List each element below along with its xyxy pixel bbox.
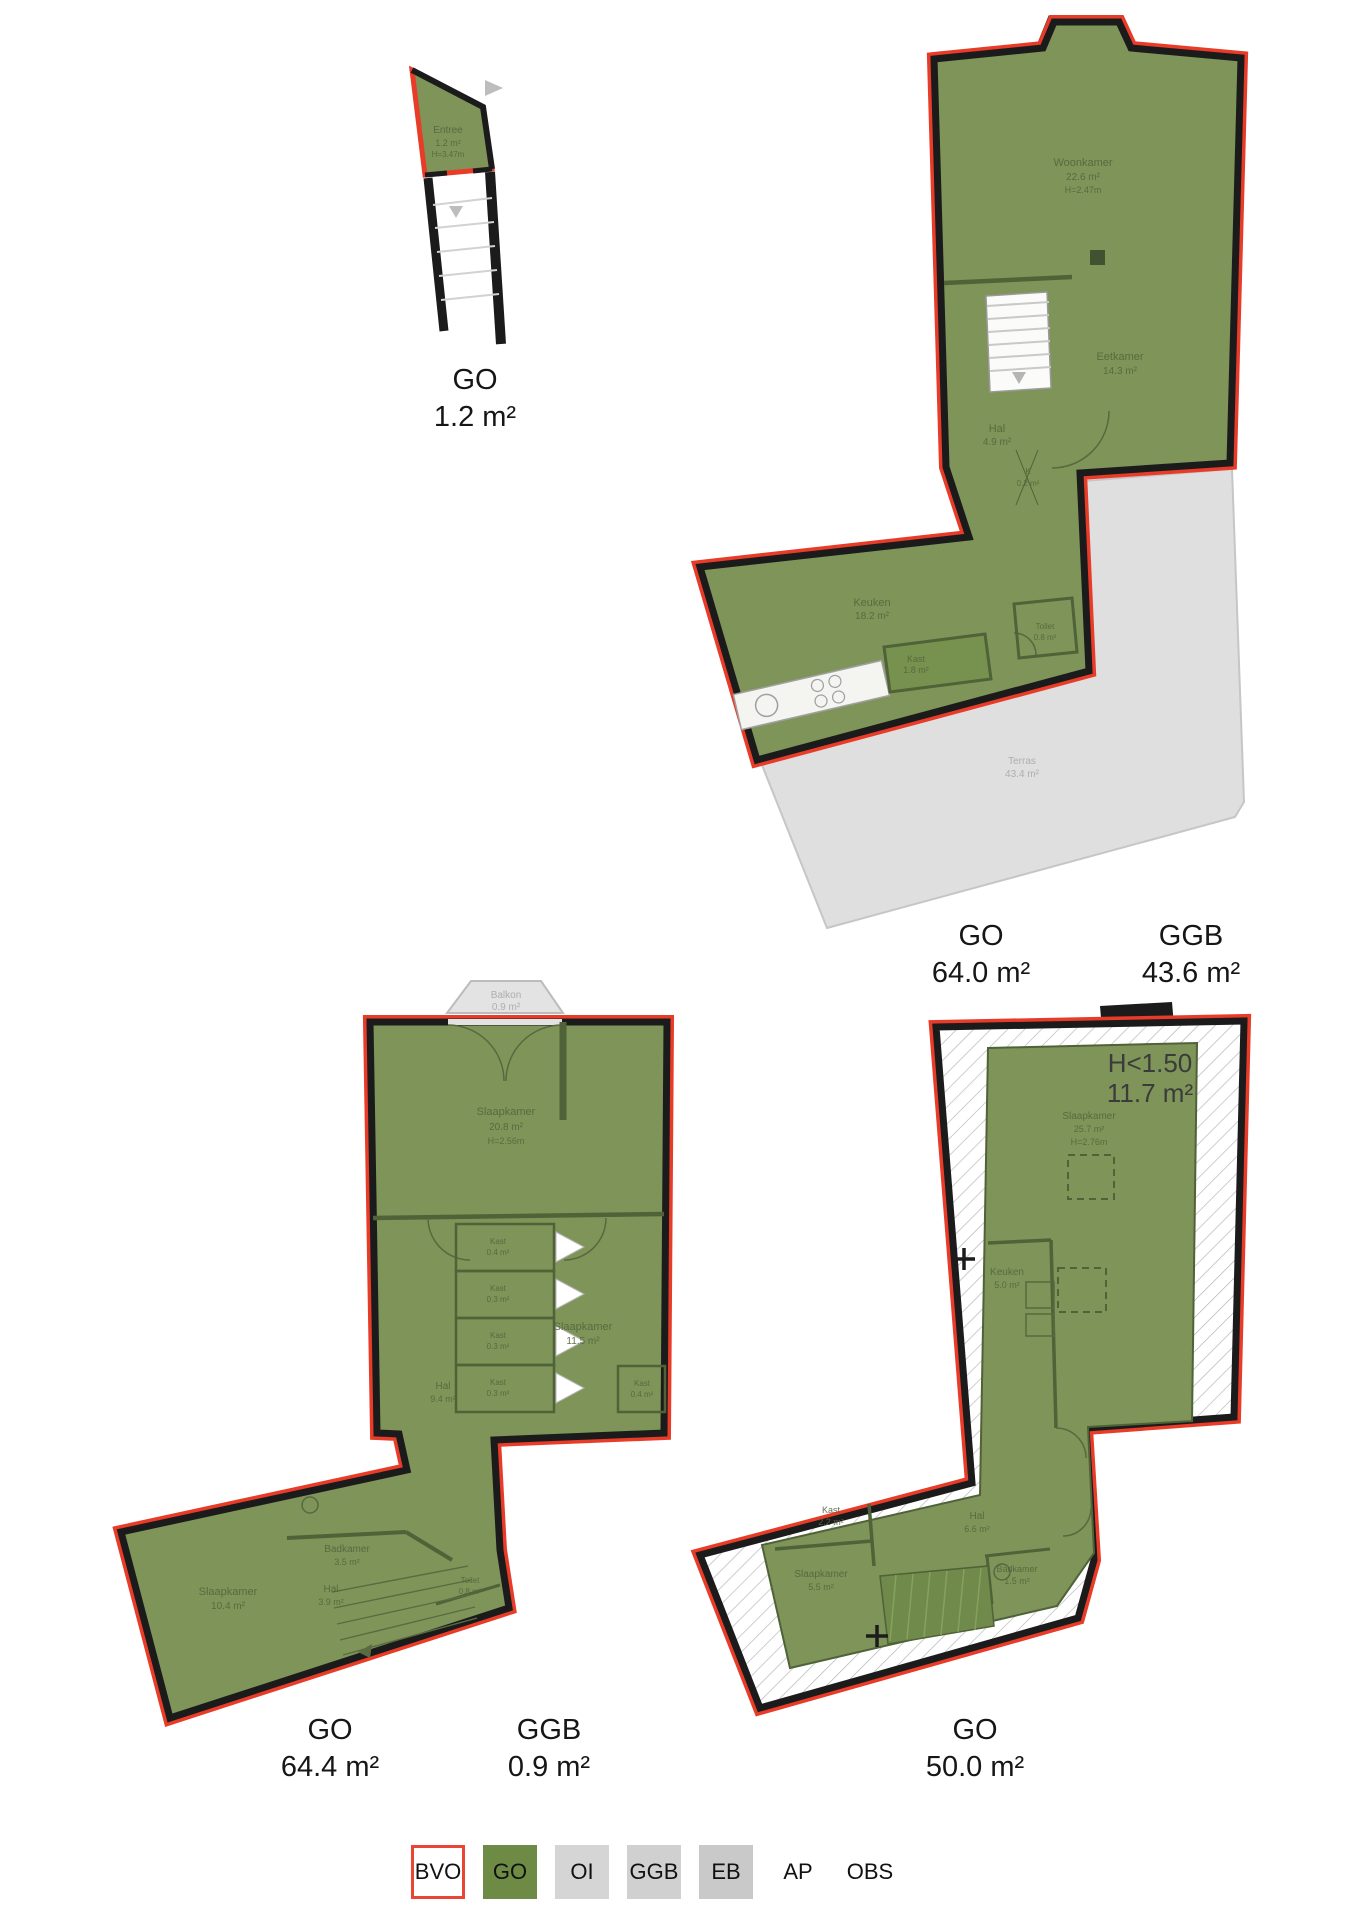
room-area-slaapkamer2: 5.5 m² [808,1582,834,1592]
room-label-badkamer: Badkamer [996,1564,1037,1574]
entry-arrow-icon [485,80,503,96]
low-height-annotation-line2: 11.7 m² [1107,1078,1194,1108]
legend-label-oi: OI [555,1845,609,1899]
room-label-k: K [1025,467,1031,476]
area-type: GGB [449,1712,649,1749]
room-label-balkon: Balkon [491,990,522,1001]
room-area-terras: 43.4 m² [1005,769,1040,780]
room-area-woonkamer: 22.6 m² [1066,172,1101,183]
legend-label-go: GO [483,1845,537,1899]
area-summary-ggb-floor1: GGB 43.6 m² [1091,918,1291,992]
area-value: 43.6 m² [1091,955,1291,992]
room-area-kast: 1.8 m² [903,665,929,675]
legend-label-eb: EB [699,1845,753,1899]
area-type: GO [881,918,1081,955]
room-label-keuken: Keuken [990,1267,1024,1278]
room-height-entree: H=3.47m [432,150,465,159]
room-label-badkamer: Badkamer [324,1544,370,1555]
room-area-keuken: 5.0 m² [994,1280,1020,1290]
floor2-balcony: Balkon 0.9 m² [447,981,563,1013]
legend-item-ggb: GGB [627,1845,681,1899]
room-height-slaapkamer1: H=2.76m [1071,1137,1108,1147]
room-height-slaapkamer1: H=2.56m [488,1136,525,1146]
room-area-badkamer: 3.5 m² [334,1557,360,1567]
legend-item-go: GO [483,1845,537,1899]
plan-entree: Entree 1.2 m² H=3.47m [412,70,503,344]
plan-floor2: Balkon 0.9 m² [121,981,667,1718]
room-area-kast: 2.2 m² [818,1517,844,1527]
chimney-block [1090,250,1105,265]
room-area-keuken: 18.2 m² [855,611,890,622]
room-area-eetkamer: 14.3 m² [1103,366,1138,377]
room-area-k: 0.2 m² [1017,479,1040,488]
low-height-annotation-line1: H<1.50 [1108,1048,1193,1078]
legend-label-obs: OBS [843,1845,897,1899]
room-label-hal: Hal [435,1381,450,1392]
room-label-kast3: Kast [490,1331,507,1340]
room-area-badkamer: 1.5 m² [1004,1576,1030,1586]
room-label-hal2: Hal [323,1584,338,1595]
legend-item-bvo: BVO [411,1845,465,1899]
legend-label-ggb: GGB [627,1845,681,1899]
legend: BVO GO OI GGB EB AP OBS [411,1845,897,1899]
entree-wall-segment [425,173,447,175]
room-label-kast1: Kast [490,1237,507,1246]
room-area-slaapkamer1: 25.7 m² [1074,1124,1105,1134]
area-value: 64.4 m² [230,1749,430,1786]
room-area-entree: 1.2 m² [435,138,461,148]
area-type: GO [375,362,575,399]
room-label-slaapkamer1: Slaapkamer [1062,1111,1116,1122]
room-area-toilet: 0.8 m² [1034,633,1057,642]
room-label-slaapkamer2: Slaapkamer [554,1321,613,1333]
room-area-kast4: 0.3 m² [487,1389,510,1398]
plan-floor3: H<1.50 11.7 m² Slaapkamer 25.7 m² H=2.76… [700,1002,1244,1708]
legend-item-oi: OI [555,1845,609,1899]
area-type: GO [875,1712,1075,1749]
area-summary-go-entree: GO 1.2 m² [375,362,575,436]
legend-item-eb: EB [699,1845,753,1899]
area-summary-go-floor3: GO 50.0 m² [875,1712,1075,1786]
room-area-hal2: 3.9 m² [318,1597,344,1607]
room-area-kast3: 0.3 m² [487,1342,510,1351]
room-label-toilet: Toilet [1036,622,1055,631]
room-label-entree: Entree [433,125,463,136]
area-value: 50.0 m² [875,1749,1075,1786]
area-value: 0.9 m² [449,1749,649,1786]
room-label-keuken: Keuken [853,597,890,609]
room-label-slaapkamer1: Slaapkamer [477,1106,536,1118]
area-value: 64.0 m² [881,955,1081,992]
room-area-hal: 6.6 m² [964,1524,990,1534]
room-label-kast2: Kast [490,1284,507,1293]
floor2-go-area [121,1022,667,1718]
room-label-eetkamer: Eetkamer [1096,351,1143,363]
room-label-toilet: Toilet [461,1576,480,1585]
room-area-kast5: 0.4 m² [631,1390,654,1399]
floor1-staircase [986,292,1051,392]
room-label-hal: Hal [989,423,1006,435]
room-area-slaapkamer3: 10.4 m² [211,1601,246,1612]
room-label-woonkamer: Woonkamer [1053,157,1112,169]
room-label-terras: Terras [1008,756,1036,767]
area-summary-ggb-floor2: GGB 0.9 m² [449,1712,649,1786]
room-area-toilet: 0.8 m² [459,1587,482,1596]
area-type: GGB [1091,918,1291,955]
room-area-kast1: 0.4 m² [487,1248,510,1257]
room-height-woonkamer: H=2.47m [1065,185,1102,195]
legend-label-ap: AP [771,1845,825,1899]
room-area-hal: 9.4 m² [430,1394,456,1404]
legend-item-obs: OBS [843,1845,897,1899]
room-area-kast2: 0.3 m² [487,1295,510,1304]
room-area-hal: 4.9 m² [983,437,1012,448]
room-label-kast4: Kast [490,1378,507,1387]
legend-item-ap: AP [771,1845,825,1899]
room-label-slaapkamer2: Slaapkamer [794,1569,848,1580]
room-label-hal: Hal [969,1511,984,1522]
area-summary-go-floor2: GO 64.4 m² [230,1712,430,1786]
plan-floor1: Terras 43.4 m² [700,19,1244,928]
area-summary-go-floor1: GO 64.0 m² [881,918,1081,992]
room-label-kast5: Kast [634,1379,651,1388]
room-area-slaapkamer2: 11.5 m² [566,1336,600,1347]
area-value: 1.2 m² [375,399,575,436]
room-label-kast: Kast [907,654,926,664]
room-area-balkon: 0.9 m² [492,1002,521,1013]
room-area-slaapkamer1: 20.8 m² [489,1122,524,1133]
entree-go-area [412,70,492,175]
stairs-down-arrow-icon [449,206,463,218]
entree-wall-segment [473,169,492,171]
area-type: GO [230,1712,430,1749]
legend-label-bvo: BVO [411,1845,465,1899]
floorplan-sheet: Entree 1.2 m² H=3.47m Terras 43.4 m² [0,0,1358,1920]
room-label-slaapkamer3: Slaapkamer [199,1586,258,1598]
room-label-kast: Kast [822,1505,841,1515]
